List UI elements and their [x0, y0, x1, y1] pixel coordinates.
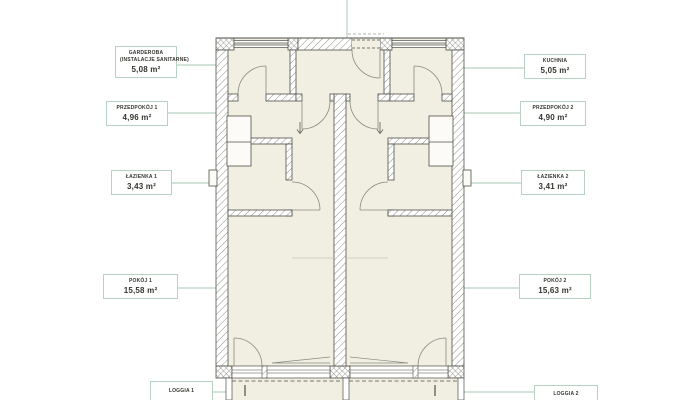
- room-label-kuchnia: KUCHNIA 5,05 m²: [524, 54, 586, 79]
- room-label-lazienka-1: ŁAZIENKA 1 3,43 m²: [111, 170, 172, 195]
- room-label-pokoj-2: POKÓJ 2 15,63 m²: [519, 274, 591, 299]
- room-area: 4,96 m²: [111, 113, 163, 122]
- room-name: LOGGIA 1: [155, 388, 208, 395]
- room-area: 3,41 m²: [526, 182, 580, 191]
- room-area: 5,05 m²: [529, 66, 581, 75]
- room-label-lazienka-2: ŁAZIENKA 2 3,41 m²: [521, 170, 585, 195]
- room-label-loggia-1: LOGGIA 1: [150, 381, 213, 400]
- room-name: KUCHNIA: [529, 58, 581, 65]
- room-label-loggia-2: LOGGIA 2: [534, 385, 598, 400]
- floor-plan-drawing: [0, 0, 692, 400]
- room-area: 5,08 m²: [120, 65, 172, 74]
- room-label-pokoj-1: POKÓJ 1 15,58 m²: [103, 274, 178, 299]
- room-area: 15,63 m²: [524, 286, 586, 295]
- entrance-opening: [348, 34, 384, 49]
- room-name: ŁAZIENKA 1: [116, 174, 167, 181]
- room-name: PRZEDPOKÓJ 2: [525, 105, 581, 112]
- room-name: POKÓJ 2: [524, 278, 586, 285]
- floor-plan-page: GARDEROBA (INSTALACJE SANITARNE) 5,08 m²…: [0, 0, 692, 400]
- room-label-przedpokoj-2: PRZEDPOKÓJ 2 4,90 m²: [520, 101, 586, 126]
- room-area: 4,90 m²: [525, 113, 581, 122]
- room-label-przedpokoj-1: PRZEDPOKÓJ 1 4,96 m²: [106, 101, 168, 126]
- room-name: ŁAZIENKA 2: [526, 174, 580, 181]
- room-area: 3,43 m²: [116, 182, 167, 191]
- room-label-garderoba: GARDEROBA (INSTALACJE SANITARNE) 5,08 m²: [115, 46, 177, 78]
- room-name: LOGGIA 2: [539, 391, 593, 398]
- room-name-sub: (INSTALACJE SANITARNE): [120, 57, 172, 64]
- room-area: 15,58 m²: [108, 286, 173, 295]
- room-name: PRZEDPOKÓJ 1: [111, 105, 163, 112]
- room-name: POKÓJ 1: [108, 278, 173, 285]
